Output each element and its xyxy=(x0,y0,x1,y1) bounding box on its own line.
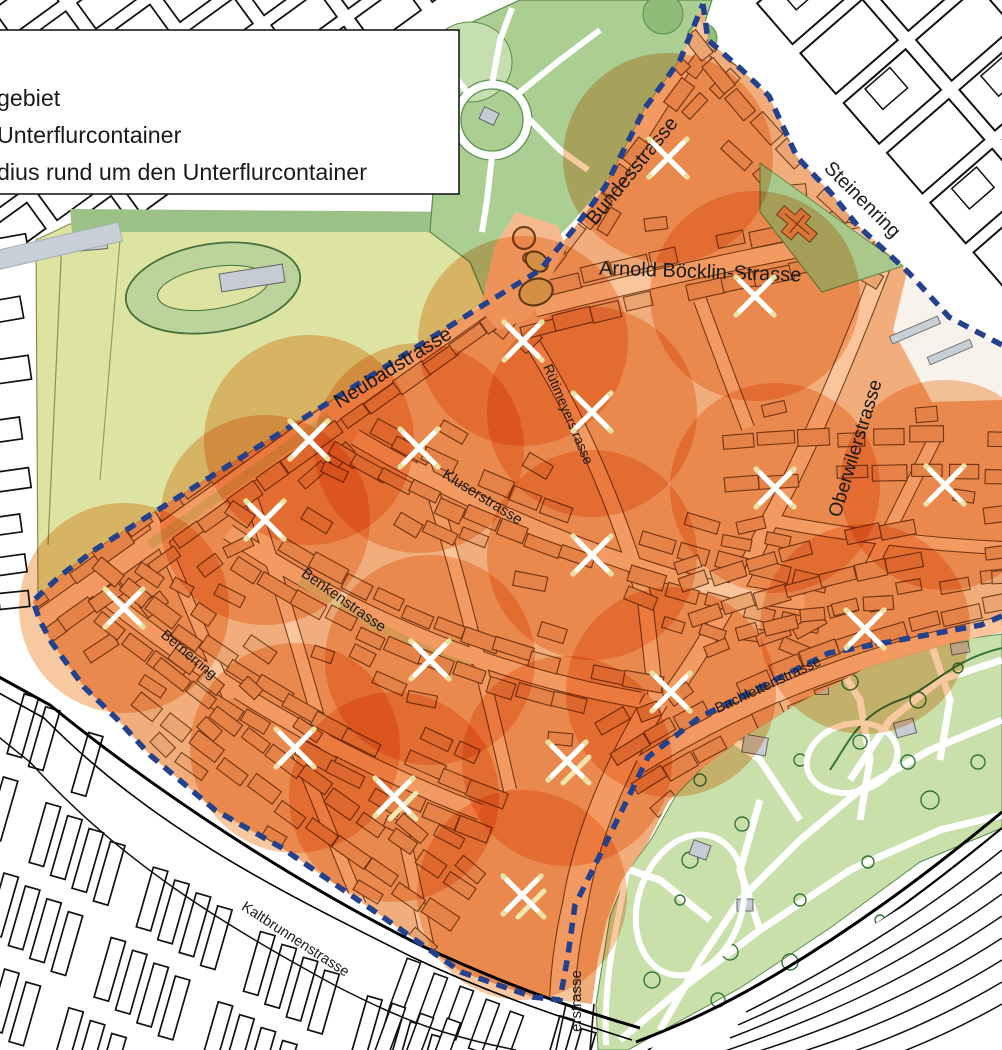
svg-text:dius rund um den Unterflurcont: dius rund um den Unterflurcontainer xyxy=(0,159,367,185)
svg-text:Unterflurcontainer: Unterflurcontainer xyxy=(0,122,182,148)
svg-text:gebiet: gebiet xyxy=(0,85,61,111)
svg-text:erstrasse: erstrasse xyxy=(568,970,585,1032)
